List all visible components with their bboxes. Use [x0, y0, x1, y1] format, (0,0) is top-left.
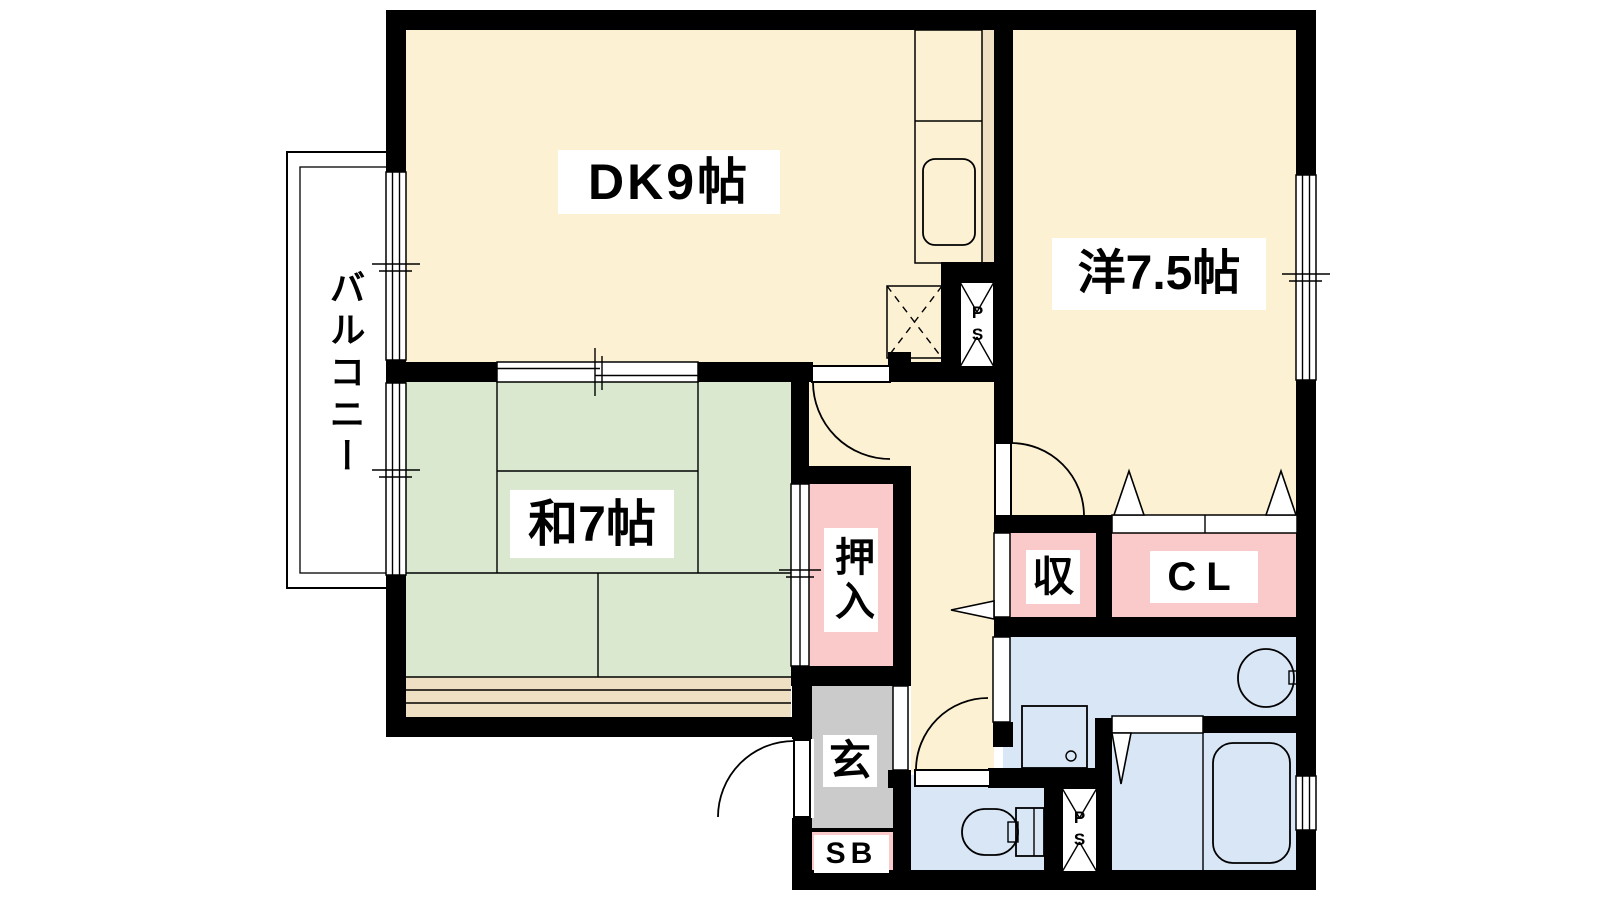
wall	[994, 617, 1316, 637]
dk-label: DK9帖	[558, 150, 780, 214]
genkan-label: 玄	[823, 735, 877, 787]
cl-label: CL	[1150, 551, 1258, 603]
counter-back-strip	[982, 30, 994, 263]
wall	[893, 770, 911, 880]
wall	[1044, 788, 1062, 880]
genkan-step-line	[812, 828, 893, 832]
wall	[994, 515, 1112, 533]
bathroom-floor	[1104, 710, 1306, 880]
floor-plan-drawing	[0, 0, 1600, 900]
pipe-space-upper-label: PS	[962, 290, 993, 360]
wall	[994, 382, 1013, 443]
door-entrance	[718, 739, 814, 818]
wood-deck-strip	[386, 677, 791, 717]
wall	[988, 768, 1097, 788]
wall	[888, 352, 911, 382]
wall	[893, 466, 911, 686]
wall	[698, 362, 813, 382]
toilet-floor	[900, 775, 1054, 880]
hallway-floor	[911, 382, 994, 772]
genkan-hall-opening	[893, 686, 908, 770]
wall	[941, 281, 960, 368]
wall	[1096, 533, 1112, 617]
oshiire-label: 押入	[824, 528, 878, 632]
western-room-label: 洋7.5帖	[1052, 238, 1266, 310]
wall	[994, 20, 1013, 382]
floor-plan: DK9帖 洋7.5帖 和7帖 バルコニー 押入 収 CL 玄 SB PS PS	[0, 0, 1600, 900]
window-bath	[1296, 776, 1316, 830]
wall	[993, 722, 1013, 747]
shoebox-label: SB	[814, 835, 889, 873]
storage-label: 収	[1026, 550, 1080, 604]
japanese-room-label: 和7帖	[510, 490, 674, 558]
balcony-label: バルコニー	[319, 247, 370, 500]
washroom-opening	[993, 637, 1010, 722]
pipe-space-lower-label: PS	[1064, 796, 1095, 864]
wall	[941, 262, 1013, 281]
